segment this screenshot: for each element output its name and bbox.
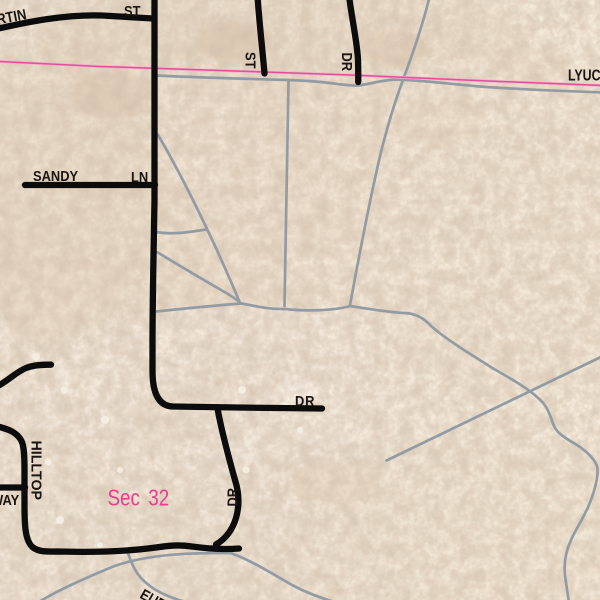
svg-text:DR: DR <box>339 53 356 72</box>
svg-text:LYUC: LYUC <box>568 66 600 84</box>
svg-text:SANDY: SANDY <box>33 167 79 184</box>
svg-text:WAY: WAY <box>0 491 20 508</box>
svg-text:Sec 32: Sec 32 <box>108 485 170 512</box>
svg-text:ST: ST <box>124 2 141 19</box>
svg-text:DR: DR <box>295 392 315 409</box>
svg-text:ST: ST <box>242 52 259 69</box>
svg-text:HILLTOP: HILLTOP <box>27 441 43 501</box>
svg-text:LN: LN <box>131 168 148 185</box>
svg-text:DR: DR <box>224 488 241 507</box>
